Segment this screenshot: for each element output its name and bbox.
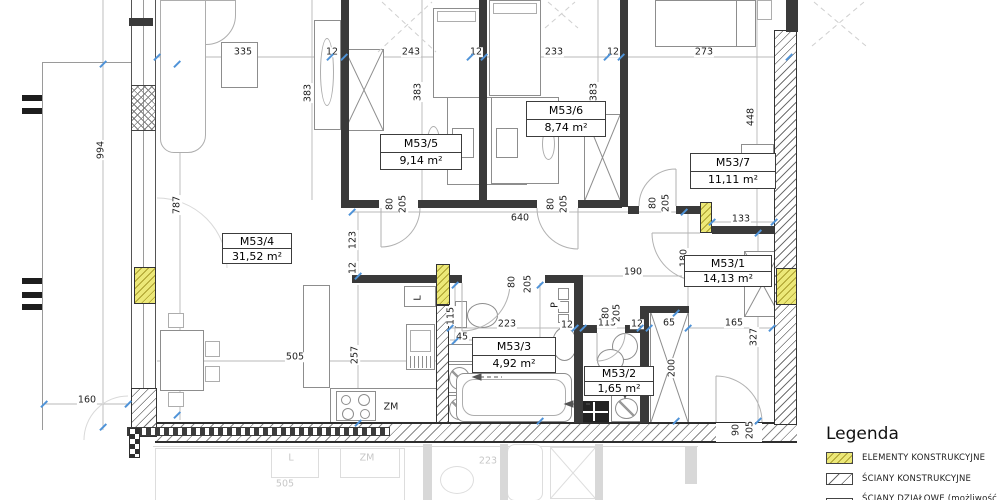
dimension-label: 787 bbox=[172, 195, 182, 215]
dimension-label: 233 bbox=[544, 47, 564, 57]
room-name: M53/4 bbox=[223, 234, 291, 249]
room-area: 1,65 m² bbox=[585, 382, 653, 396]
section-marker bbox=[129, 428, 140, 458]
dimension-label: 257 bbox=[350, 345, 360, 365]
wall bbox=[620, 0, 628, 207]
dimension-label: 505 bbox=[285, 352, 305, 362]
room-label: M53/34,92 m² bbox=[472, 337, 556, 373]
dimension-label: 640 bbox=[510, 213, 530, 223]
dimension-label: 335 bbox=[233, 47, 253, 57]
room-label: M53/114,13 m² bbox=[684, 255, 772, 287]
dimension-label: 165 bbox=[724, 318, 744, 328]
floor-plan-page: LZM505223 Legenda ELEMENTY KONSTRUKCYJNE… bbox=[0, 0, 1000, 500]
wall bbox=[545, 275, 583, 283]
dimension-label: 205 bbox=[523, 274, 533, 294]
dimension-label: 123 bbox=[348, 230, 358, 250]
room-name: M53/5 bbox=[381, 135, 461, 153]
wall bbox=[352, 275, 436, 283]
legend-item: ŚCIANY DZIAŁOWE (możliwość aranżacji) bbox=[826, 494, 1000, 500]
wall bbox=[578, 200, 622, 208]
dimension-label: 205 bbox=[661, 193, 671, 213]
wall bbox=[479, 0, 487, 207]
dimension-label: 80 bbox=[507, 275, 517, 289]
room-area: 4,92 m² bbox=[473, 356, 555, 373]
room-name: M53/3 bbox=[473, 338, 555, 356]
dimension-label: 383 bbox=[413, 82, 423, 102]
diagonal-hatch-swatch bbox=[826, 473, 853, 485]
dimension-label: 80 bbox=[546, 197, 556, 211]
screen-mark bbox=[22, 292, 42, 298]
dimension-label: 223 bbox=[497, 319, 517, 329]
wall bbox=[418, 200, 537, 208]
structural-element-yellow bbox=[700, 202, 712, 233]
legend-title: Legenda bbox=[826, 424, 1000, 444]
room-area: 31,52 m² bbox=[223, 249, 291, 263]
screen-mark bbox=[22, 304, 42, 310]
room-label: M53/21,65 m² bbox=[584, 366, 654, 396]
dimension-label: 994 bbox=[96, 140, 106, 160]
dimension-label: 12 bbox=[348, 261, 358, 275]
dimension-label: 65 bbox=[662, 318, 676, 328]
wall bbox=[574, 283, 583, 423]
yellow-hatch-swatch bbox=[826, 452, 853, 464]
dimension-label: 200 bbox=[667, 358, 677, 378]
structural-wall-segment bbox=[131, 85, 156, 131]
dimension-label: 273 bbox=[694, 47, 714, 57]
room-label: M53/711,11 m² bbox=[690, 153, 776, 189]
dimension-label: 383 bbox=[589, 82, 599, 102]
legend-item: ŚCIANY KONSTRUKCYJNE bbox=[826, 473, 1000, 485]
room-area: 8,74 m² bbox=[527, 120, 605, 137]
room-label: M53/68,74 m² bbox=[526, 101, 606, 137]
wall bbox=[676, 206, 702, 214]
room-area: 11,11 m² bbox=[691, 172, 775, 189]
wall bbox=[649, 306, 689, 313]
dimension-label: L bbox=[413, 294, 423, 301]
dimension-label: 80 bbox=[385, 197, 395, 211]
wall bbox=[341, 0, 349, 208]
screen-mark bbox=[22, 95, 42, 101]
room-name: M53/2 bbox=[585, 367, 653, 382]
dimension-label: P bbox=[550, 301, 560, 309]
room-area: 9,14 m² bbox=[381, 153, 461, 170]
room-label: M53/59,14 m² bbox=[380, 134, 462, 170]
dimension-label: 448 bbox=[746, 107, 756, 127]
dimension-label: 160 bbox=[77, 395, 97, 405]
room-area: 14,13 m² bbox=[685, 272, 771, 287]
dimension-label: 133 bbox=[731, 214, 751, 224]
dimension-label: 383 bbox=[303, 83, 313, 103]
wall bbox=[712, 226, 774, 234]
screen-mark bbox=[22, 278, 42, 284]
right-exterior-wall bbox=[774, 30, 797, 425]
legend-item: ELEMENTY KONSTRUKCYJNE bbox=[826, 452, 1000, 464]
dimension-label: 205 bbox=[398, 194, 408, 214]
dimension-label: 80 bbox=[648, 196, 658, 210]
left-exterior-window-wall bbox=[131, 0, 156, 437]
room-name: M53/6 bbox=[527, 102, 605, 120]
dimension-label: 205 bbox=[612, 303, 622, 323]
dimension-label: 80 bbox=[601, 306, 611, 320]
room-name: M53/1 bbox=[685, 256, 771, 272]
room-label: M53/431,52 m² bbox=[222, 233, 292, 264]
structural-element-yellow bbox=[776, 268, 797, 305]
wall bbox=[341, 200, 379, 208]
legend: Legenda ELEMENTY KONSTRUKCYJNE ŚCIANY KO… bbox=[826, 424, 1000, 500]
dimension-label: 90 bbox=[731, 423, 741, 437]
screen-mark bbox=[22, 108, 42, 114]
wall-cap bbox=[129, 18, 153, 26]
wall bbox=[786, 0, 798, 32]
balcony-railing bbox=[127, 427, 390, 436]
dimension-label: ZM bbox=[383, 402, 400, 412]
dimension-label: 205 bbox=[559, 194, 569, 214]
dimension-label: 243 bbox=[401, 47, 421, 57]
structural-element-yellow bbox=[436, 264, 450, 305]
structural-element-yellow bbox=[134, 267, 156, 304]
wall bbox=[628, 206, 639, 214]
dimension-label: 115 bbox=[446, 306, 456, 326]
room-name: M53/7 bbox=[691, 154, 775, 172]
dimension-label: 327 bbox=[749, 327, 759, 347]
dimension-label: 190 bbox=[623, 267, 643, 277]
